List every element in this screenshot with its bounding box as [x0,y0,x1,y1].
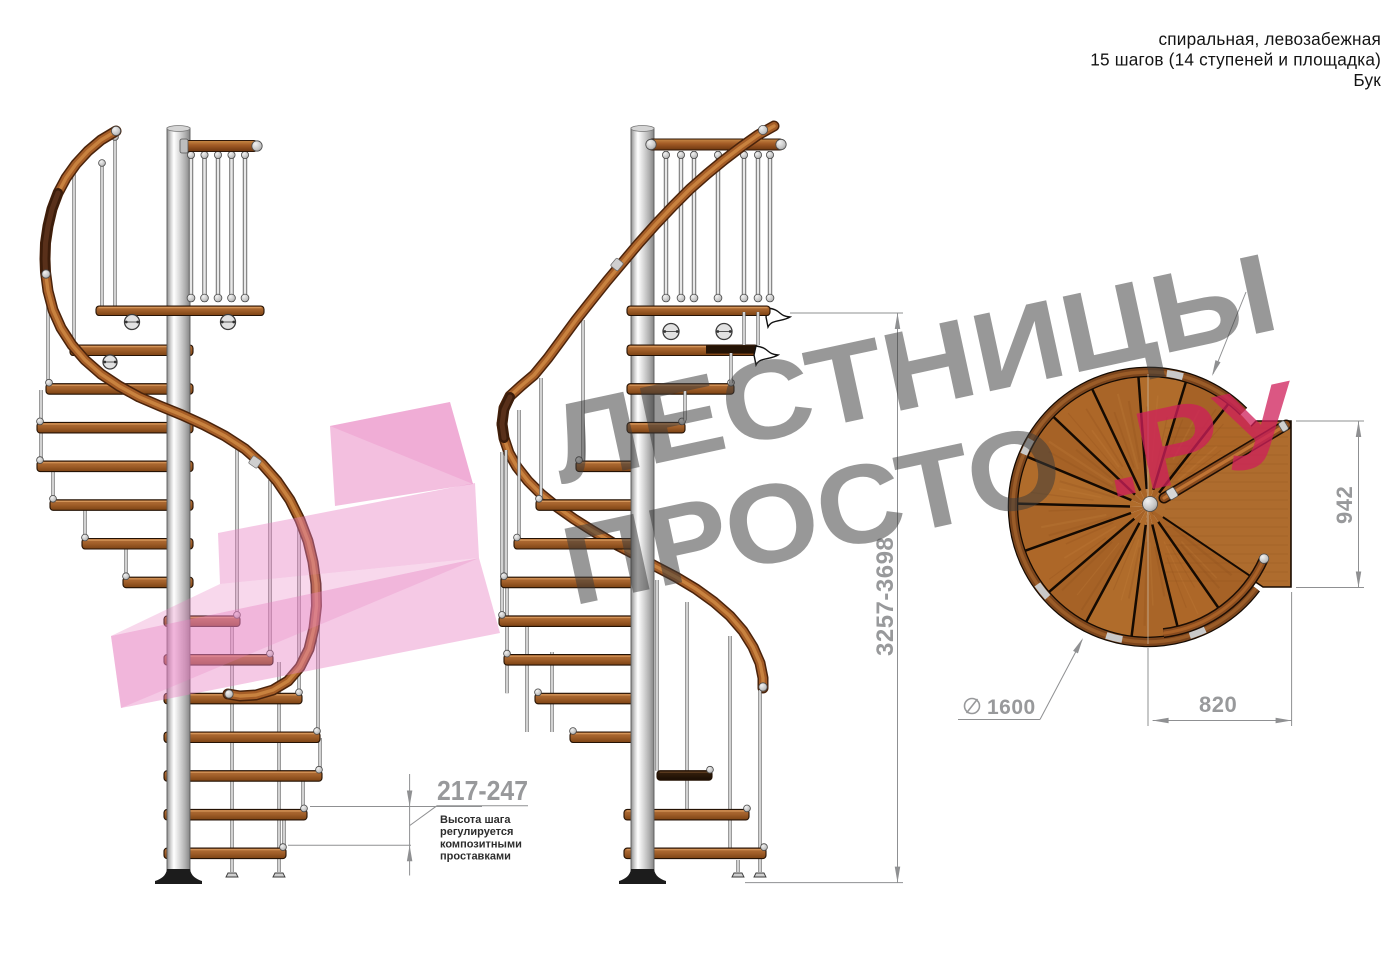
svg-text:спиральная, левозабежная: спиральная, левозабежная [1158,29,1381,49]
svg-text:Бук: Бук [1353,70,1381,90]
svg-text:820: 820 [1199,692,1237,717]
svg-text:Высота шагарегулируетсякомпози: Высота шагарегулируетсякомпозитнымипрост… [440,814,522,863]
svg-text:15 шагов (14 ступеней и площад: 15 шагов (14 ступеней и площадка) [1090,50,1381,70]
svg-text:1600: 1600 [987,696,1036,719]
svg-text:942: 942 [1332,486,1357,524]
svg-text:217-247: 217-247 [437,775,528,806]
